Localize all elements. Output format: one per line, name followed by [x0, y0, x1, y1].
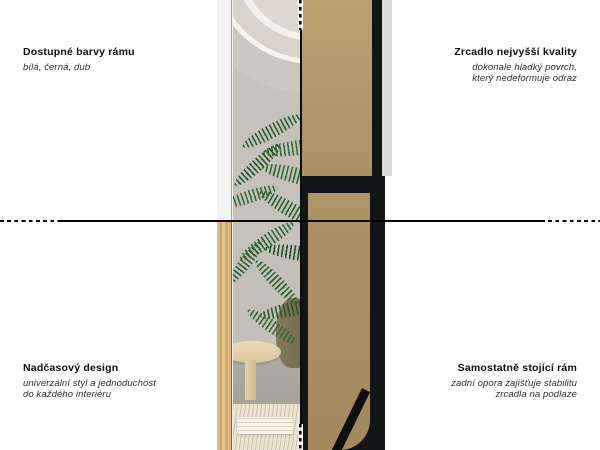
- mirror-glass-reflection: [233, 0, 300, 450]
- mdf-back-panel-top: [302, 0, 372, 176]
- stacked-books-reflection: [237, 417, 293, 434]
- feature-title-freestanding-frame: Samostatně stojící rám: [387, 362, 577, 374]
- feature-block-frame-colors: Dostupné barvy rámu bílá, černá, dub: [23, 46, 213, 74]
- mirror-feature-infographic: Dostupné barvy rámu bílá, černá, dub Zrc…: [0, 0, 600, 450]
- feature-subtitle-frame-colors: bílá, černá, dub: [23, 63, 213, 74]
- feature-subtitle-timeless-design-line2: do každého interiéru: [23, 390, 213, 401]
- wall-sliver: [382, 0, 392, 176]
- feature-subtitle-timeless-design-line1: univerzální styl a jednoduchost: [23, 379, 213, 390]
- wooden-stool-leg: [245, 360, 256, 400]
- feature-title-mirror-quality: Zrcadlo nejvyšší kvality: [387, 46, 577, 58]
- white-frame-strip: [217, 0, 232, 221]
- vertical-divider-dotted-top: [298, 0, 303, 30]
- feature-subtitle-mirror-quality-line2: který nedeformuje odraz: [387, 74, 577, 85]
- feature-block-mirror-quality: Zrcadlo nejvyšší kvality dokonale hladký…: [387, 46, 577, 84]
- product-photo: [217, 0, 390, 450]
- background-gap: [385, 176, 392, 450]
- palm-plant-reflection: [233, 108, 300, 353]
- mdf-back-panel-inner: [308, 193, 370, 450]
- feature-subtitle-freestanding-frame-line1: zadní opora zajišťuje stabilitu: [387, 379, 577, 390]
- feature-subtitle-freestanding-frame-line2: zrcadla na podlaze: [387, 390, 577, 401]
- horizontal-divider-dotted-right: [541, 220, 600, 223]
- horizontal-divider-dotted-left: [0, 220, 58, 223]
- feature-title-frame-colors: Dostupné barvy rámu: [23, 46, 213, 58]
- vertical-divider-dotted-bottom: [298, 424, 303, 450]
- feature-title-timeless-design: Nadčasový design: [23, 362, 213, 374]
- feature-subtitle-mirror-quality-line1: dokonale hladký povrch,: [387, 63, 577, 74]
- mirror-front-photo: [217, 0, 300, 450]
- horizontal-divider-solid: [58, 220, 541, 222]
- feature-block-timeless-design: Nadčasový design univerzální styl a jedn…: [23, 362, 213, 400]
- feature-block-freestanding-frame: Samostatně stojící rám zadní opora zajiš…: [387, 362, 577, 400]
- mirror-back-photo: [300, 0, 390, 450]
- oak-frame-strip: [217, 221, 232, 450]
